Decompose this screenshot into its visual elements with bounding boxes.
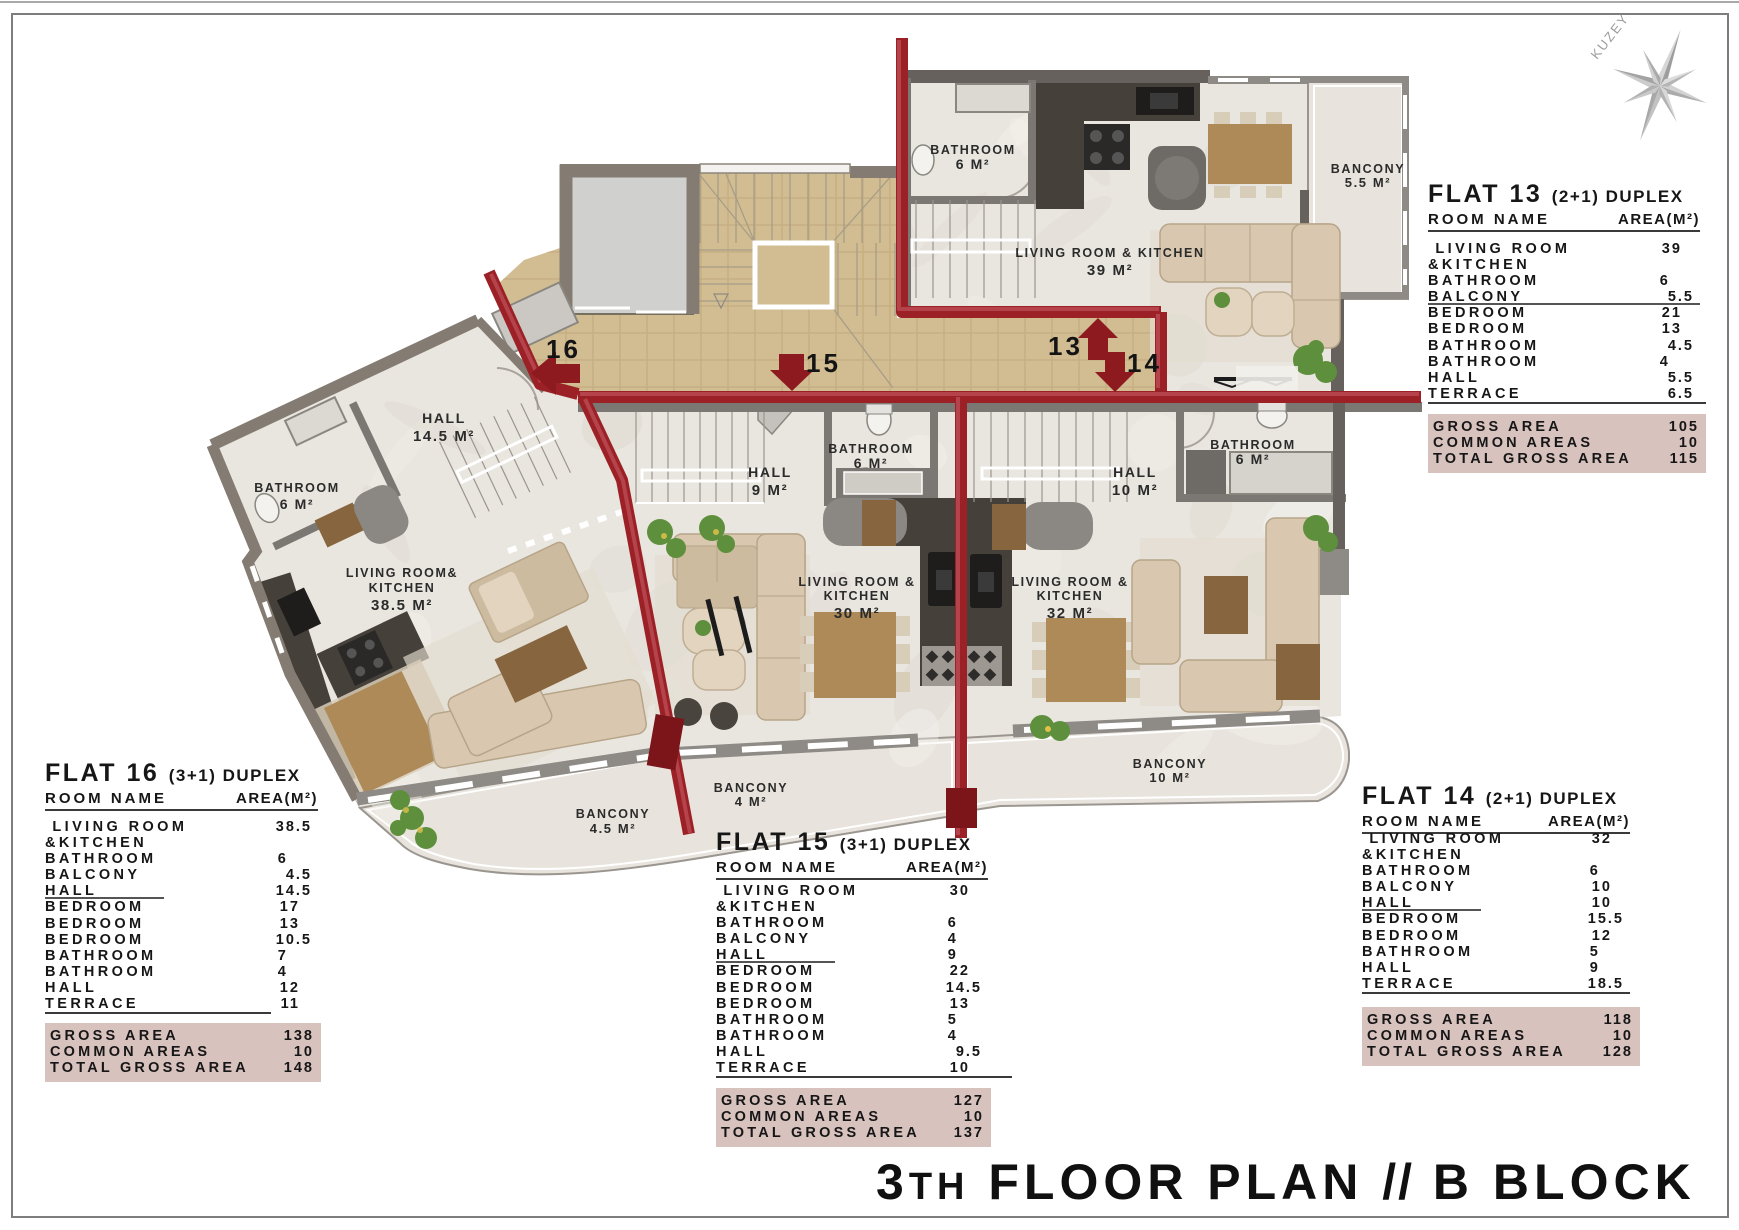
svg-text:KUZEY: KUZEY [1588, 11, 1633, 62]
svg-text:HALL: HALL [1113, 464, 1157, 480]
svg-text:30 M²: 30 M² [834, 605, 880, 622]
svg-text:HALL: HALL [422, 410, 466, 426]
svg-text:BANCONY: BANCONY [1133, 757, 1207, 771]
svg-text:LIVING ROOM & KITCHEN: LIVING ROOM & KITCHEN [1015, 246, 1204, 260]
svg-text:6 M²: 6 M² [854, 455, 888, 471]
svg-text:5.5 M²: 5.5 M² [1345, 175, 1391, 190]
svg-text:BATHROOM: BATHROOM [254, 481, 339, 495]
svg-text:LIVING ROOM &: LIVING ROOM & [798, 575, 915, 589]
svg-text:6 M²: 6 M² [1236, 451, 1270, 467]
svg-text:10 M²: 10 M² [1112, 482, 1158, 499]
svg-text:BATHROOM: BATHROOM [930, 143, 1015, 157]
svg-text:4 M²: 4 M² [735, 794, 767, 809]
svg-text:10 M²: 10 M² [1149, 770, 1190, 785]
svg-text:16: 16 [546, 334, 581, 364]
svg-text:HALL: HALL [748, 464, 792, 480]
svg-text:38.5 M²: 38.5 M² [371, 597, 433, 614]
svg-text:LIVING ROOM &: LIVING ROOM & [1011, 575, 1128, 589]
svg-text:13: 13 [1048, 331, 1083, 361]
svg-text:BANCONY: BANCONY [576, 807, 650, 821]
svg-text:6 M²: 6 M² [956, 156, 990, 172]
svg-text:9 M²: 9 M² [752, 482, 788, 499]
svg-text:39 M²: 39 M² [1087, 262, 1133, 279]
svg-text:BATHROOM: BATHROOM [828, 442, 913, 456]
svg-text:BANCONY: BANCONY [714, 781, 788, 795]
svg-text:14.5 M²: 14.5 M² [413, 428, 475, 445]
svg-text:4.5 M²: 4.5 M² [590, 821, 636, 836]
svg-text:KITCHEN: KITCHEN [1037, 589, 1104, 603]
svg-text:14: 14 [1127, 348, 1162, 378]
svg-text:BATHROOM: BATHROOM [1210, 438, 1295, 452]
svg-text:BANCONY: BANCONY [1331, 162, 1405, 176]
svg-text:KITCHEN: KITCHEN [824, 589, 891, 603]
svg-text:6 M²: 6 M² [280, 496, 314, 512]
svg-text:KITCHEN: KITCHEN [369, 581, 436, 595]
svg-text:LIVING ROOM&: LIVING ROOM& [346, 566, 458, 580]
svg-text:32 M²: 32 M² [1047, 605, 1093, 622]
svg-text:15: 15 [806, 348, 841, 378]
